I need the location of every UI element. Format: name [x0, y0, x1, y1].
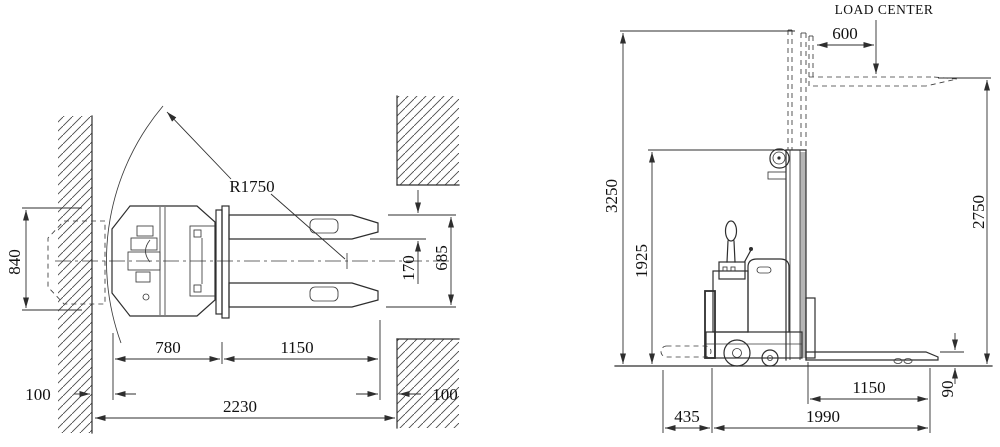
dim-fork-length-text: 1150 — [280, 338, 313, 357]
dim-fork-width-text: 170 — [399, 255, 418, 281]
dim-turning-radius-text: R1750 — [229, 177, 274, 196]
aisle-wall-left — [58, 116, 92, 433]
tiller-grip — [726, 221, 737, 241]
rack-wall-top-right — [397, 96, 459, 185]
dim-aisle-width: 2230 — [95, 397, 395, 418]
motor-hood — [748, 259, 789, 332]
dim-collapsed-height-text: 1925 — [632, 244, 651, 278]
dim-tiller-length: 435 — [663, 370, 710, 433]
tiller-lowered-dashed — [661, 346, 711, 357]
fork-upper-slot — [310, 219, 338, 233]
fork-upper — [229, 215, 378, 239]
dim-fork-span-text: 685 — [432, 245, 451, 271]
rack-wall-bottom-right — [397, 339, 459, 428]
wall-hatch — [397, 339, 459, 428]
dim-fork-height-text: 90 — [938, 381, 957, 398]
dim-rear-length-text: 780 — [155, 338, 181, 357]
dim-lift-height-text: 2750 — [969, 195, 988, 229]
dim-max-height: 3250 — [602, 31, 795, 364]
wall-hatch — [397, 96, 459, 185]
mast-channel-shading — [800, 152, 806, 358]
fork-side-profile — [806, 352, 938, 360]
drive-wheel-hub — [733, 349, 742, 358]
fork-backrest-bar — [222, 206, 229, 318]
fork-lower-slot — [310, 287, 338, 301]
mast-peg — [768, 172, 786, 179]
dim-lift-height: 2750 — [938, 78, 991, 364]
dim-clearance-right-text: 100 — [432, 385, 458, 404]
rear-housing — [713, 271, 748, 332]
dim-fork-length-side-text: 1150 — [852, 378, 885, 397]
tiller-stem — [727, 241, 735, 262]
dim-overall-length-text: 1990 — [806, 407, 840, 426]
load-center-label: LOAD CENTER — [835, 2, 934, 17]
dim-rear-length: 780 — [113, 333, 222, 400]
fork-tip-roller — [894, 359, 902, 364]
top-view-body — [112, 206, 229, 318]
dim-load-center-text: 600 — [832, 24, 858, 43]
pulley-axle — [777, 156, 780, 159]
top-view: 840 R1750 780 1150 100 — [5, 96, 459, 433]
fork-carriage — [806, 298, 815, 358]
tiller-lever — [745, 250, 751, 261]
raised-mast-dashed — [788, 30, 813, 150]
dim-max-height-text: 3250 — [602, 179, 621, 213]
fork-lower — [229, 283, 378, 307]
dim-tiller-length-text: 435 — [674, 407, 700, 426]
dim-aisle-width-text: 2230 — [223, 397, 257, 416]
control-button — [723, 267, 727, 271]
dim-overall-width-text: 840 — [5, 249, 24, 275]
dim-fork-width: 170 — [370, 190, 426, 284]
wall-hatch — [58, 116, 92, 433]
dim-load-center: 600 — [817, 24, 874, 45]
fork-carriage-bar — [216, 210, 222, 314]
dim-fork-length-top: 1150 — [224, 320, 380, 400]
stacker-dimension-drawing: 840 R1750 780 1150 100 — [0, 0, 1000, 447]
dim-clearance-left-text: 100 — [25, 385, 51, 404]
mast — [768, 149, 806, 360]
hood-vent-slot — [757, 267, 771, 273]
chassis-frame — [706, 332, 802, 358]
control-button — [731, 267, 735, 271]
fork-tip-roller — [904, 359, 912, 364]
steering-unit — [128, 226, 160, 300]
dim-fork-height: 90 — [938, 333, 964, 398]
side-view: LOAD CENTER 600 — [602, 2, 992, 433]
side-view-body — [661, 221, 938, 366]
raised-fork-dashed — [809, 77, 957, 86]
lever-knob — [749, 247, 753, 251]
dim-overall-length: 1990 — [712, 368, 928, 433]
